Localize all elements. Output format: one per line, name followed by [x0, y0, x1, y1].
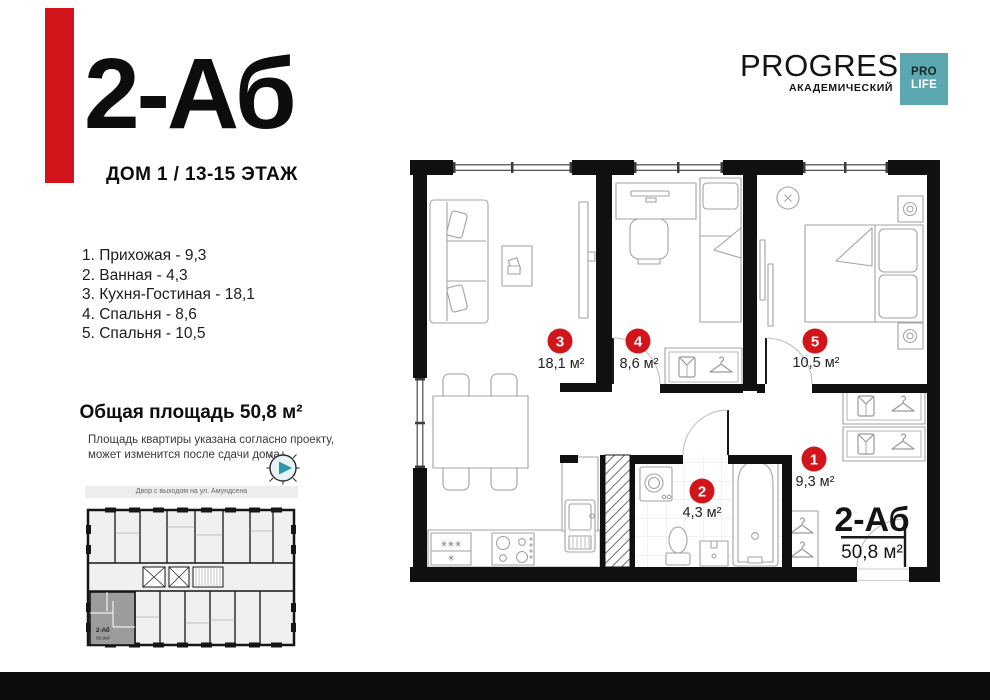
single-bed: [700, 178, 741, 322]
marker-number-2: 2: [698, 484, 706, 501]
room-list-item: 2. Ванная - 4,3: [82, 266, 255, 286]
area-disclaimer-line1: Площадь квартиры указана согласно проект…: [88, 433, 334, 448]
mini-unit-area: 50,8м²: [96, 636, 111, 642]
window-bedroom5: [803, 160, 888, 175]
compass-icon: [263, 448, 303, 488]
bathroom-sink: [700, 541, 728, 566]
bottom-black-bar: [0, 672, 990, 700]
plan-unit-label: 2-Аб 50,8 м²: [834, 501, 909, 563]
brand-name: PROGRESS: [740, 48, 920, 84]
window-living: [453, 160, 572, 175]
street-label: Двор с выходом на ул. Амундсена: [85, 486, 298, 498]
brand-district: АКАДЕМИЧЕСКИЙ: [745, 82, 893, 94]
building-floor-subtitle: ДОМ 1 / 13-15 ЭТАЖ: [106, 164, 298, 186]
room-list-item: 5. Спальня - 10,5: [82, 324, 255, 344]
hall-wardrobe-lower: [843, 427, 925, 461]
desk-chair: [630, 219, 668, 264]
room-area-5: 10,5 м²: [792, 355, 839, 371]
ceiling-point: [777, 187, 799, 209]
marker-number-5: 5: [811, 334, 819, 351]
room-area-1: 9,3 м²: [796, 474, 835, 490]
sofa: [430, 200, 488, 323]
tv-panel: [579, 202, 595, 318]
total-area-heading: Общая площадь 50,8 м²: [60, 402, 322, 424]
closet-strip: [760, 240, 773, 326]
marker-number-3: 3: [556, 334, 564, 351]
plan-unit-area: 50,8 м²: [841, 542, 903, 563]
hall-wardrobe-upper: [843, 388, 925, 424]
room-list-item: 3. Кухня-Гостиная - 18,1: [82, 285, 255, 305]
mini-unit-code: 2-Аб: [96, 627, 110, 634]
nightstand-top: [898, 196, 923, 222]
window-kitchen-side: [414, 378, 426, 468]
room-area-2: 4,3 м²: [683, 505, 722, 521]
red-accent-bar: [45, 8, 74, 183]
side-table: [502, 246, 532, 286]
badge-pro-label: PRO: [911, 66, 948, 79]
room-list-item: 1. Прихожая - 9,3: [82, 246, 255, 266]
plan-unit-underline: [841, 536, 904, 539]
wardrobe-room4: [665, 348, 742, 386]
marker-number-4: 4: [634, 334, 643, 351]
room-list: 1. Прихожая - 9,3 2. Ванная - 4,3 3. Кух…: [82, 246, 255, 344]
room-area-4: 8,6 м²: [620, 356, 659, 372]
apartment-floor-plan: 1 2 3 4 5 9,3 м² 4,3 м² 18,1 м² 8,6 м² 1…: [408, 148, 944, 594]
dining-table: [433, 396, 528, 468]
plan-unit-code: 2-Аб: [834, 501, 909, 539]
flyer-page: 2-Аб ДОМ 1 / 13-15 ЭТАЖ 1. Прихожая - 9,…: [0, 0, 990, 700]
badge-life-label: LIFE: [911, 79, 948, 92]
window-bedroom4: [634, 160, 723, 175]
fridge-marks-top: ✳✳✳: [440, 539, 462, 549]
room-area-3: 18,1 м²: [537, 356, 584, 372]
cooktop: [492, 533, 534, 565]
washing-machine: [640, 467, 672, 501]
nightstand-bottom: [898, 323, 923, 349]
room-list-item: 4. Спальня - 8,6: [82, 305, 255, 325]
fridge-marks-bottom: ✳: [447, 553, 455, 563]
bathtub: [733, 456, 778, 566]
mini-building-plan: 2-Аб 50,8м²: [85, 505, 297, 650]
ventilation-shaft: [605, 455, 630, 567]
kitchen-sink: [565, 500, 595, 552]
desk: [616, 183, 696, 219]
plan-code-title: 2-Аб: [84, 44, 294, 144]
marker-number-1: 1: [810, 452, 818, 469]
brand-badge: PRO LIFE: [900, 53, 948, 105]
elevator-stair-core: [143, 567, 223, 587]
double-bed: [805, 225, 923, 322]
